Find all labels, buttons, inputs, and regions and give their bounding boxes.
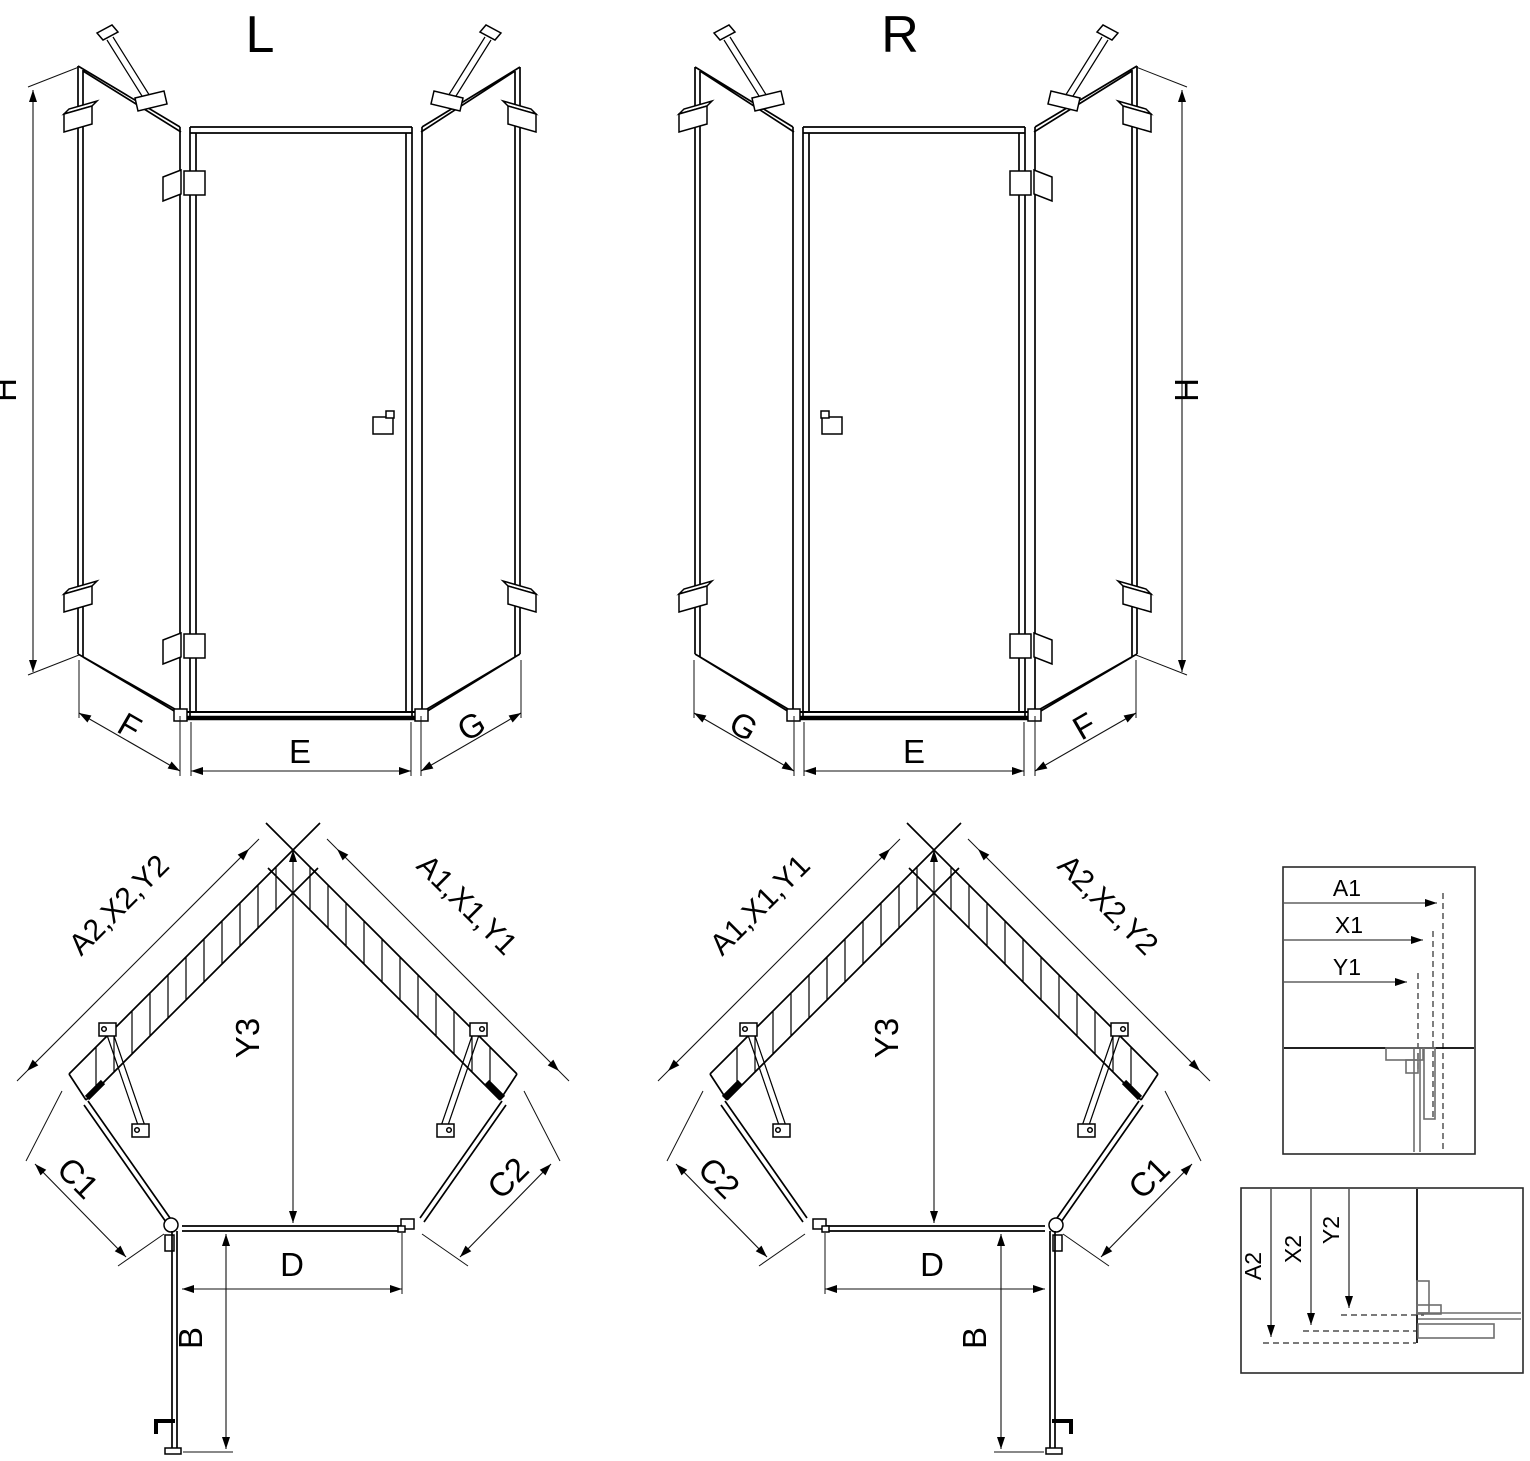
variant-left-title: L bbox=[246, 6, 275, 64]
dim-label-side-right-r: F bbox=[1066, 705, 1102, 747]
technical-drawing-page: L H F E G R H G E F A2,X2,Y2 A1,X1,Y1 Y3… bbox=[0, 0, 1530, 1461]
plan-right-view: A1,X1,Y1 A2,X2,Y2 Y3 C2 C1 D B bbox=[658, 823, 1210, 1454]
detail-top-dim1: A1 bbox=[1333, 875, 1361, 901]
detail-top-dim3: Y1 bbox=[1333, 954, 1361, 980]
detail-bottom-dim3: Y2 bbox=[1318, 1216, 1344, 1244]
dim-label-wall-left-l: A2,X2,Y2 bbox=[63, 849, 176, 962]
dim-label-front-r: E bbox=[903, 733, 925, 770]
dim-label-wall-right-l: A1,X1,Y1 bbox=[410, 849, 523, 962]
dim-label-door-open-r: B bbox=[956, 1327, 993, 1349]
detail-bottom-dim2: X2 bbox=[1280, 1235, 1306, 1263]
dim-label-wall-left-r: A1,X1,Y1 bbox=[704, 849, 817, 962]
elevation-left-view: L H F E G bbox=[0, 6, 536, 776]
dim-label-panel-left-l: C1 bbox=[50, 1150, 106, 1206]
dim-label-wall-right-r: A2,X2,Y2 bbox=[1051, 849, 1164, 962]
dim-label-door-width-r: D bbox=[920, 1246, 944, 1283]
detail-bottom-dim1: A2 bbox=[1240, 1252, 1266, 1280]
dim-label-panel-right-l: C2 bbox=[480, 1150, 536, 1206]
dim-label-side-left-l: F bbox=[112, 705, 148, 747]
elevation-right-view: R H G E F bbox=[679, 6, 1205, 776]
dim-label-panel-left-r: C2 bbox=[691, 1150, 747, 1206]
dim-label-front-l: E bbox=[289, 733, 311, 770]
variant-right-title: R bbox=[881, 6, 919, 64]
dim-label-door-width-l: D bbox=[280, 1246, 304, 1283]
dim-label-depth-l: Y3 bbox=[229, 1018, 266, 1058]
dim-label-depth-r: Y3 bbox=[868, 1018, 905, 1058]
dim-label-side-right-l: G bbox=[451, 704, 492, 749]
detail-box-top: A1 X1 Y1 bbox=[1283, 867, 1475, 1154]
dim-label-height-r: H bbox=[1168, 378, 1205, 402]
dim-label-side-left-r: G bbox=[723, 704, 764, 749]
detail-top-dim2: X1 bbox=[1335, 912, 1363, 938]
detail-box-bottom: A2 X2 Y2 bbox=[1240, 1188, 1523, 1373]
dim-label-door-open-l: B bbox=[172, 1327, 209, 1349]
plan-left-view: A2,X2,Y2 A1,X1,Y1 Y3 C1 C2 D B bbox=[17, 823, 569, 1454]
shower-enclosure-diagram: L H F E G R H G E F A2,X2,Y2 A1,X1,Y1 Y3… bbox=[0, 0, 1530, 1461]
dim-label-panel-right-r: C1 bbox=[1121, 1150, 1177, 1206]
dim-label-height-l: H bbox=[0, 378, 23, 402]
